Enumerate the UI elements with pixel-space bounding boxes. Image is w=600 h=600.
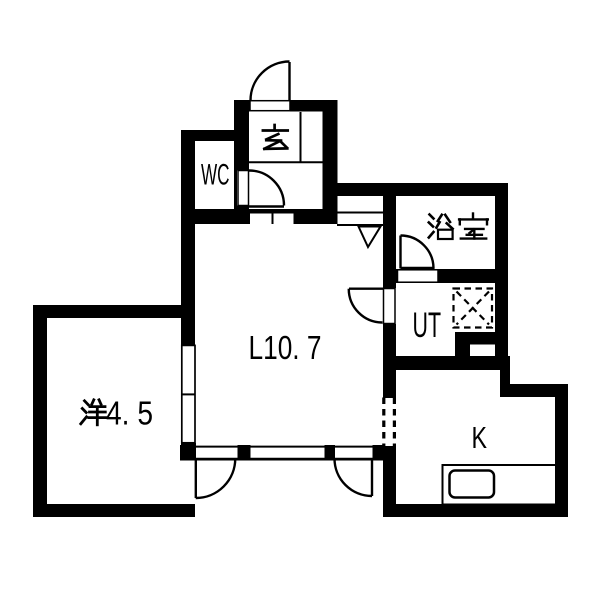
svg-text:UT: UT (413, 306, 442, 345)
svg-text:WC: WC (201, 159, 230, 192)
svg-text:4. 5: 4. 5 (106, 395, 153, 432)
svg-text:L10. 7: L10. 7 (249, 329, 322, 366)
svg-text:K: K (472, 420, 488, 455)
